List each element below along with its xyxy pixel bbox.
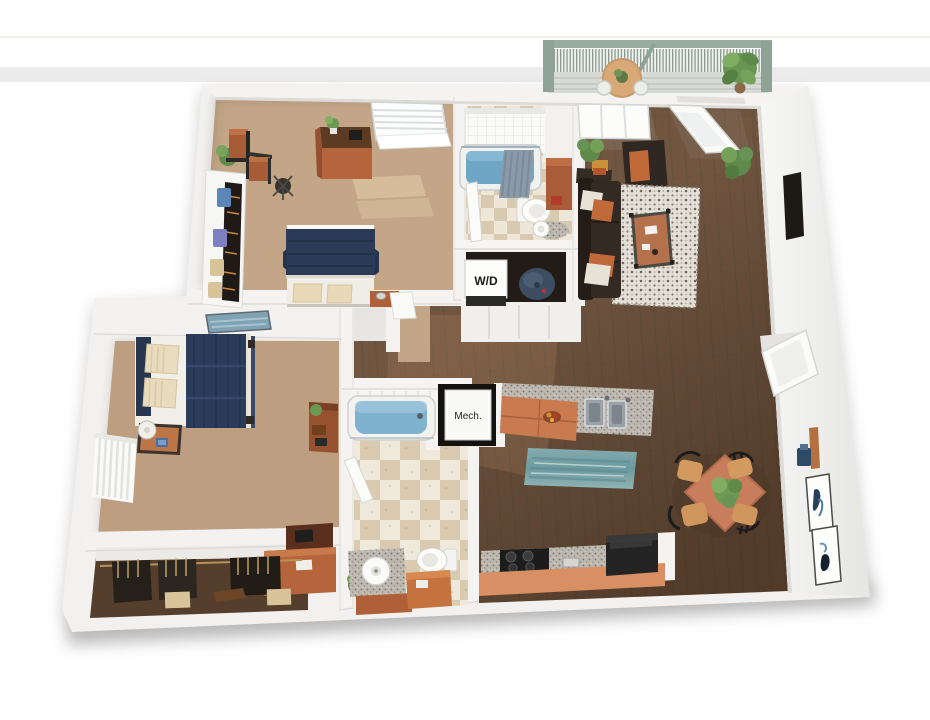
- svg-text:Mech.: Mech.: [454, 411, 481, 422]
- svg-text:W/D: W/D: [474, 274, 498, 288]
